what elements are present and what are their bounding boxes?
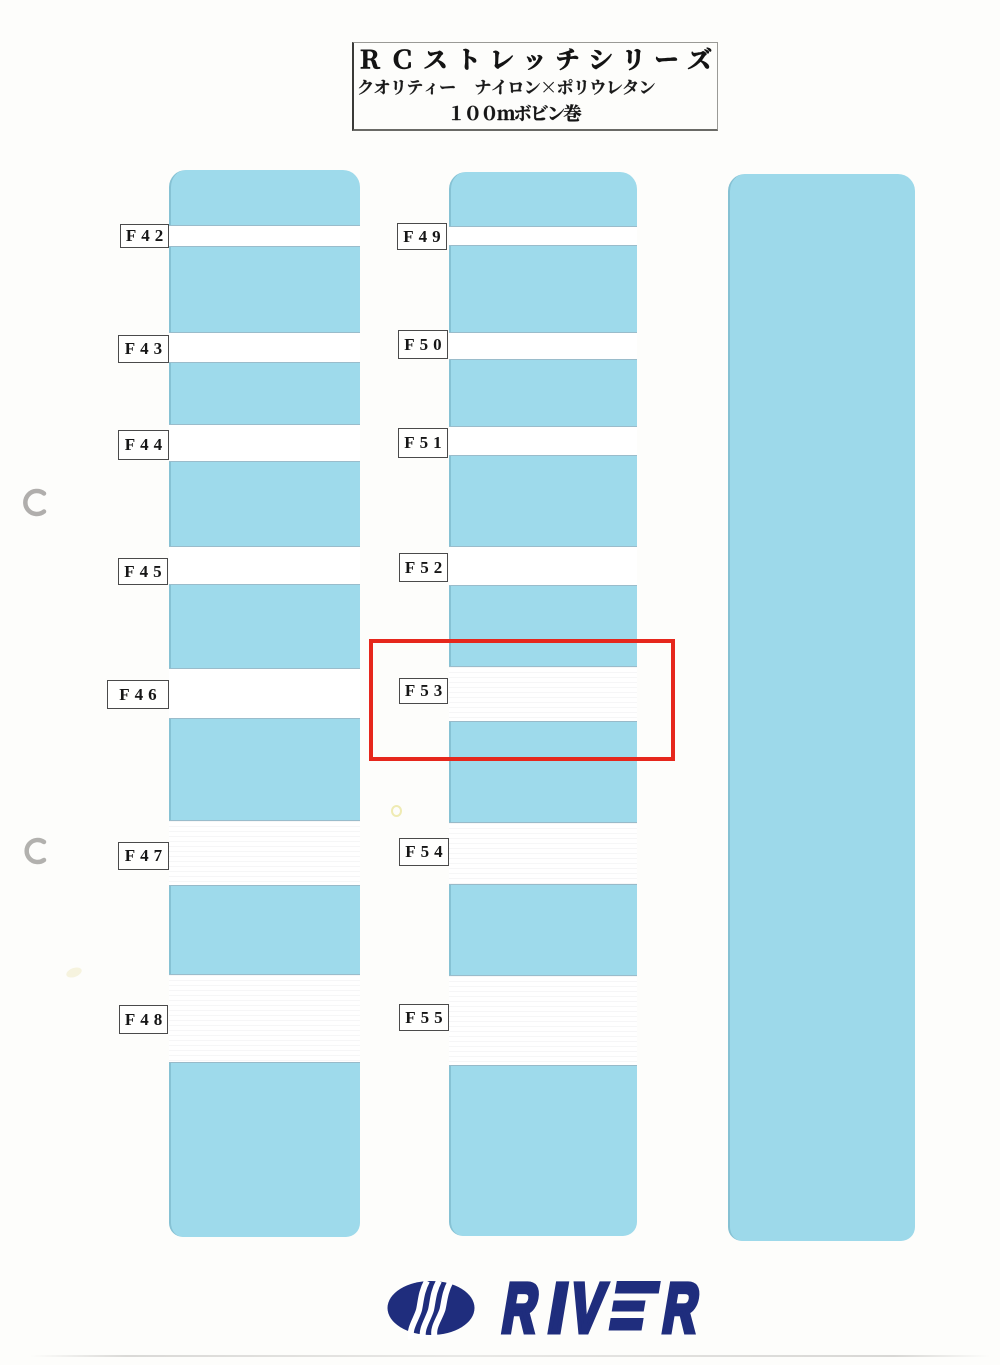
- svg-text:R: R: [658, 1268, 705, 1346]
- svg-text:R: R: [497, 1268, 544, 1346]
- svg-text:V: V: [565, 1268, 611, 1346]
